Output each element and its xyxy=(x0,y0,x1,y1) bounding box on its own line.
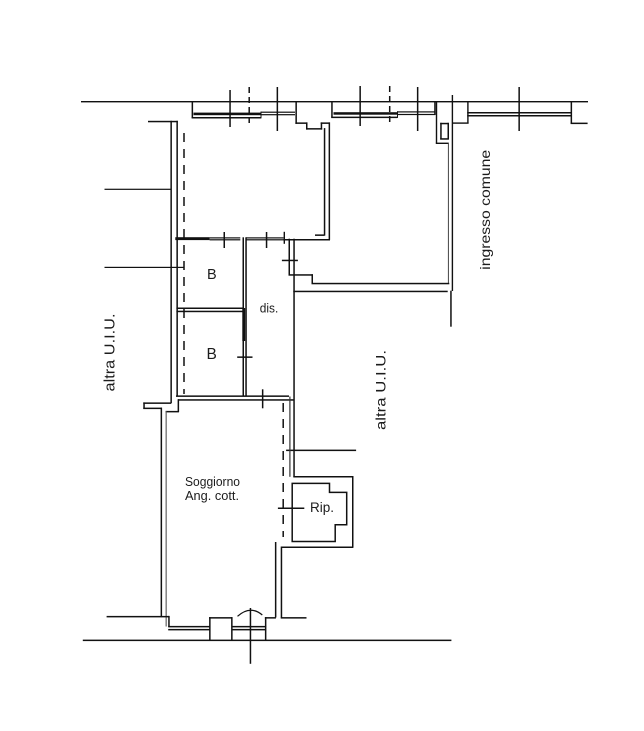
svg-text:Soggiorno: Soggiorno xyxy=(185,474,240,489)
svg-text:Ang. cott.: Ang. cott. xyxy=(185,488,239,503)
svg-text:B: B xyxy=(207,346,217,363)
svg-text:ingresso comune: ingresso comune xyxy=(477,150,493,270)
svg-text:dis.: dis. xyxy=(260,301,279,316)
svg-text:altra U.I.U.: altra U.I.U. xyxy=(373,350,389,430)
svg-text:altra U.I.U.: altra U.I.U. xyxy=(102,314,119,392)
svg-text:B: B xyxy=(207,267,217,283)
svg-text:Rip.: Rip. xyxy=(310,500,334,515)
